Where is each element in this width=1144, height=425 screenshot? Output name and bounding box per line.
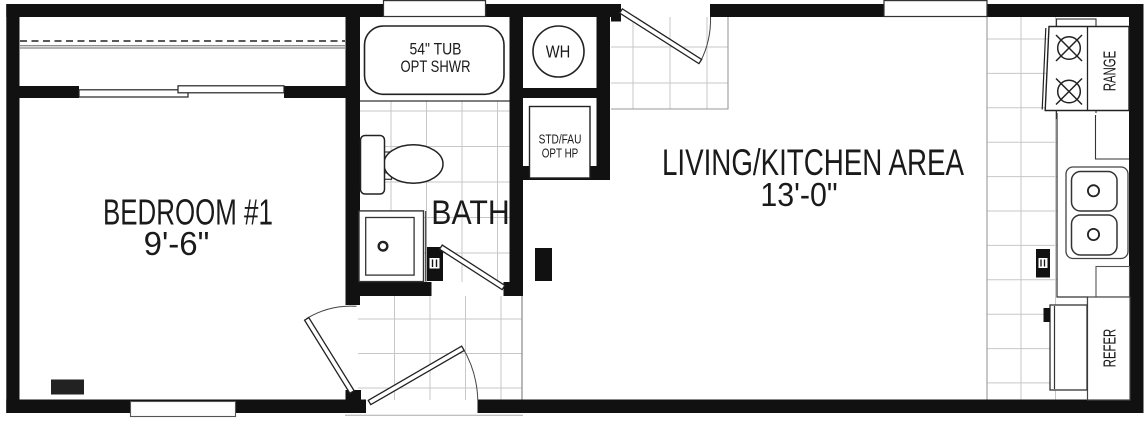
svg-text:REFER: REFER	[1100, 329, 1120, 368]
svg-text:13'-0": 13'-0"	[760, 176, 837, 213]
svg-text:OPT SHWR: OPT SHWR	[401, 59, 471, 77]
svg-text:RANGE: RANGE	[1100, 51, 1120, 91]
svg-text:BATH: BATH	[431, 194, 509, 232]
svg-text:54" TUB: 54" TUB	[410, 40, 462, 59]
svg-text:STD/FAU: STD/FAU	[539, 132, 582, 146]
svg-text:WH: WH	[546, 42, 571, 62]
svg-text:9'-6": 9'-6"	[144, 225, 210, 262]
svg-text:OPT HP: OPT HP	[542, 147, 579, 160]
